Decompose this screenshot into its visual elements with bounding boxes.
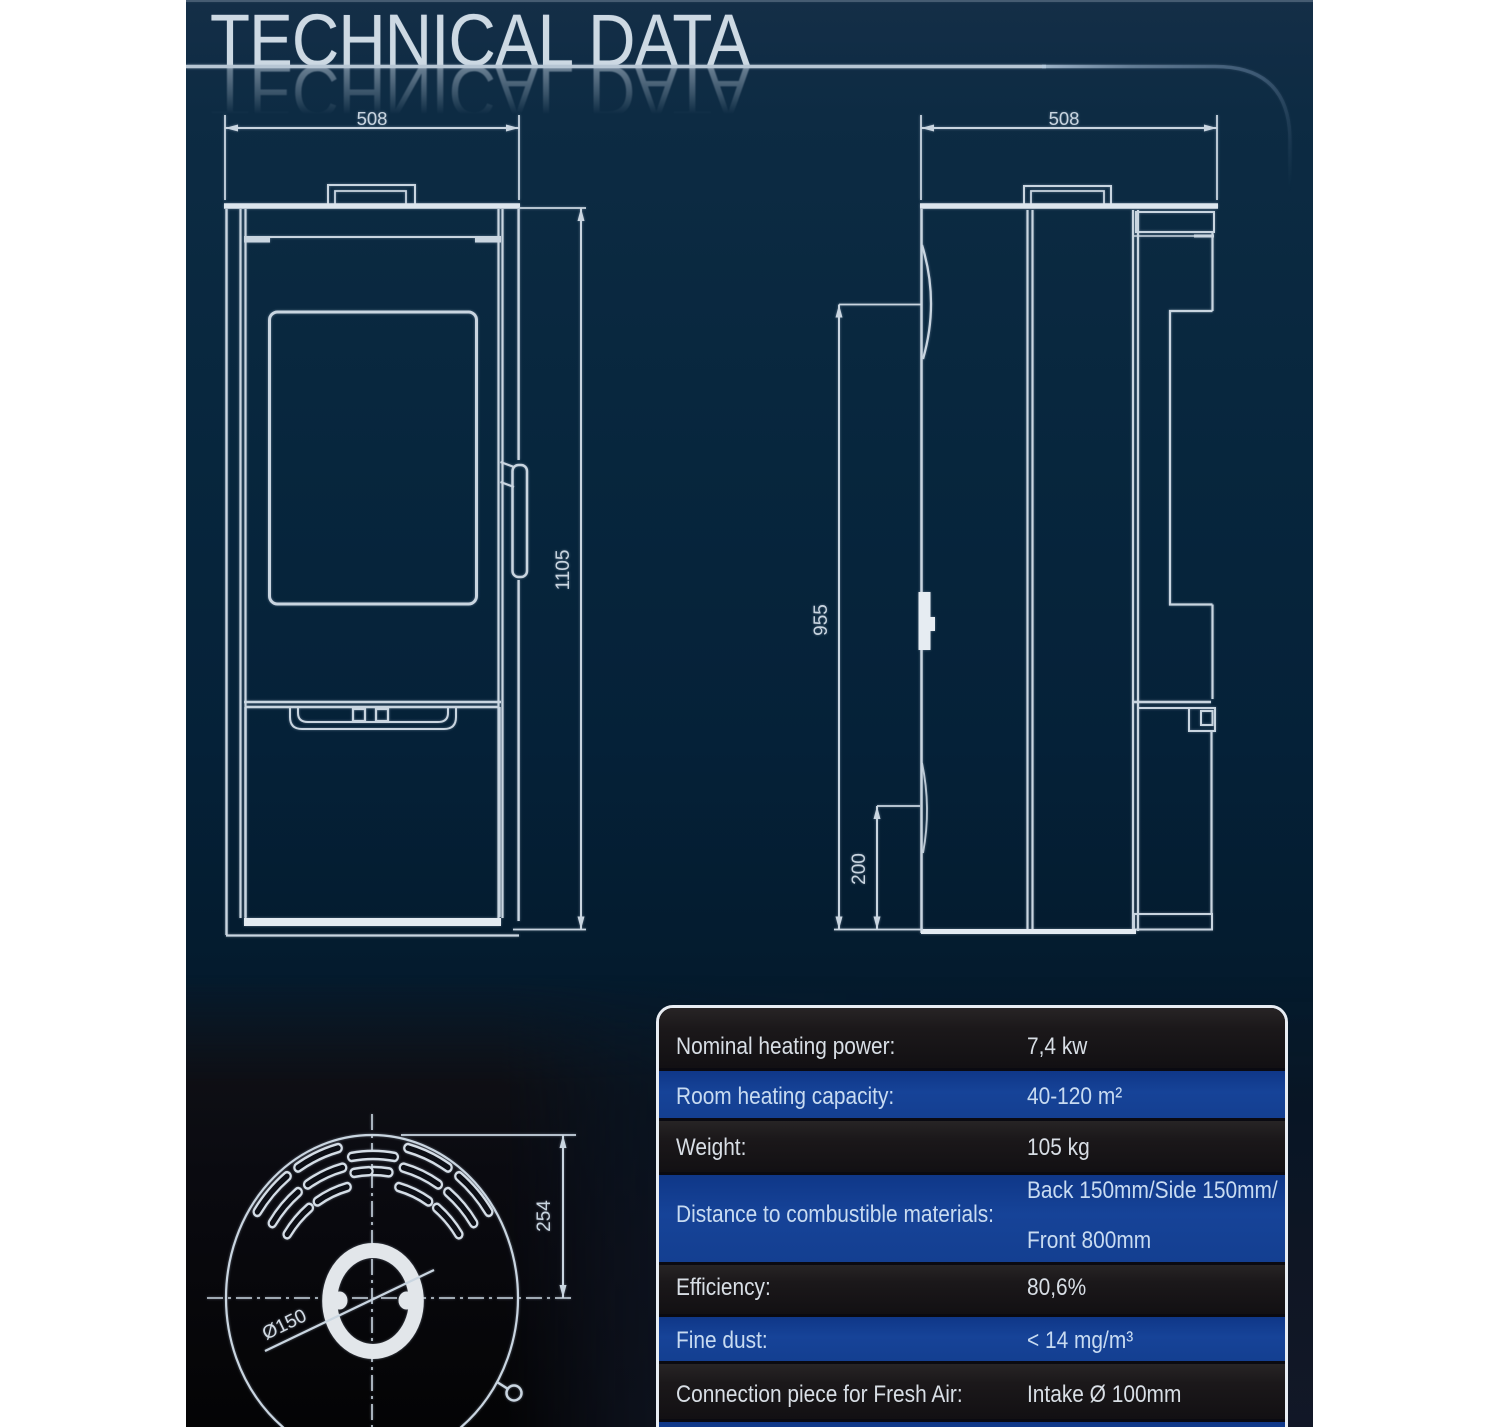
svg-text:1105: 1105 bbox=[553, 550, 574, 591]
svg-text:508: 508 bbox=[1049, 108, 1080, 129]
svg-text:254: 254 bbox=[534, 1200, 555, 1232]
svg-text:200: 200 bbox=[849, 853, 870, 885]
svg-text:Ø150: Ø150 bbox=[259, 1305, 310, 1344]
svg-text:955: 955 bbox=[811, 604, 832, 636]
svg-text:508: 508 bbox=[357, 108, 388, 129]
